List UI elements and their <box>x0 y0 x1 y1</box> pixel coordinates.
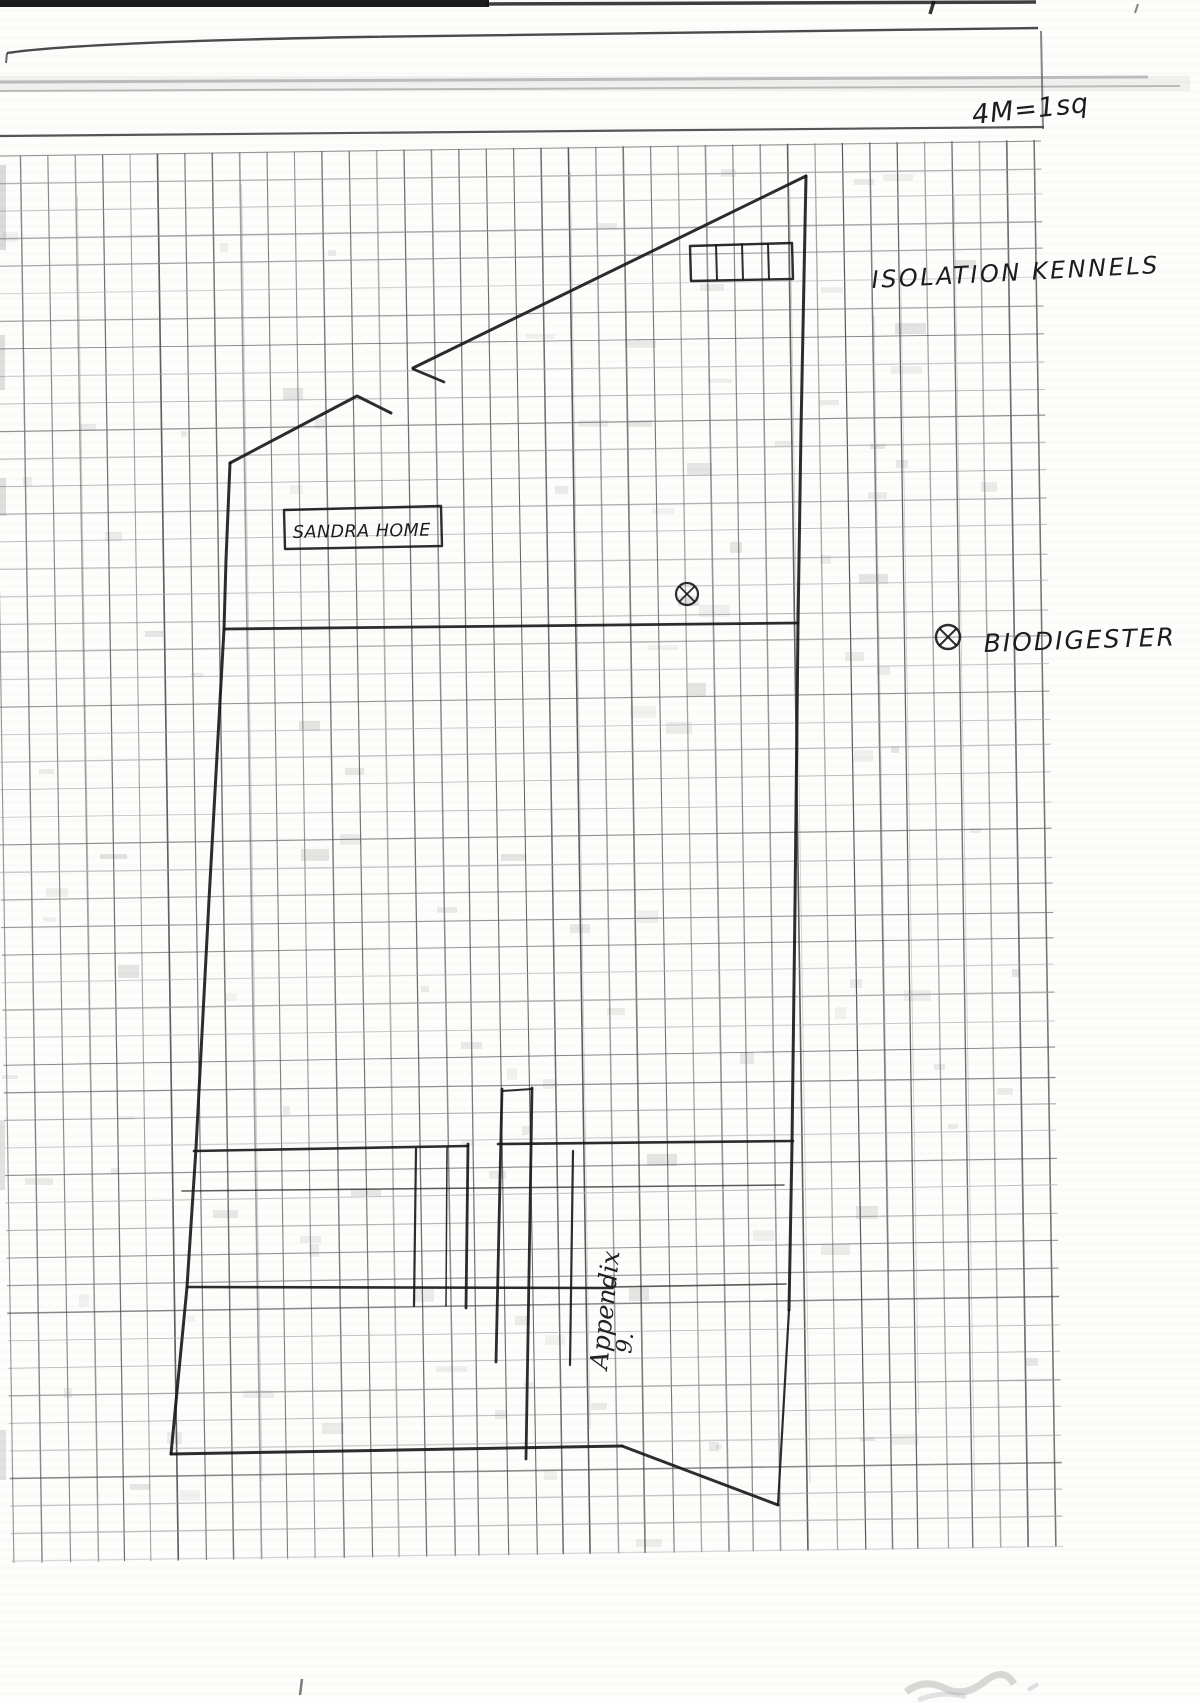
site-plan-drawing: 4M=1sq ISOLATION KENNELS <box>0 0 1200 1702</box>
scanned-site-plan-page: 4M=1sq ISOLATION KENNELS <box>0 0 1200 1702</box>
scan-artifacts-bottom <box>300 1674 1038 1700</box>
graph-paper-grid <box>0 140 1063 1563</box>
isolation-kennels-label: ISOLATION KENNELS <box>871 251 1161 294</box>
appendix-number: 9. <box>612 1331 639 1354</box>
isolation-kennels-outline <box>690 243 793 281</box>
appendix-label: Appendix <box>584 1249 625 1372</box>
sandra-home-label: SANDRA HOME <box>293 521 432 543</box>
scale-note: 4M=1sq <box>970 88 1090 131</box>
biodigester-label: BIODIGESTER <box>983 622 1176 658</box>
